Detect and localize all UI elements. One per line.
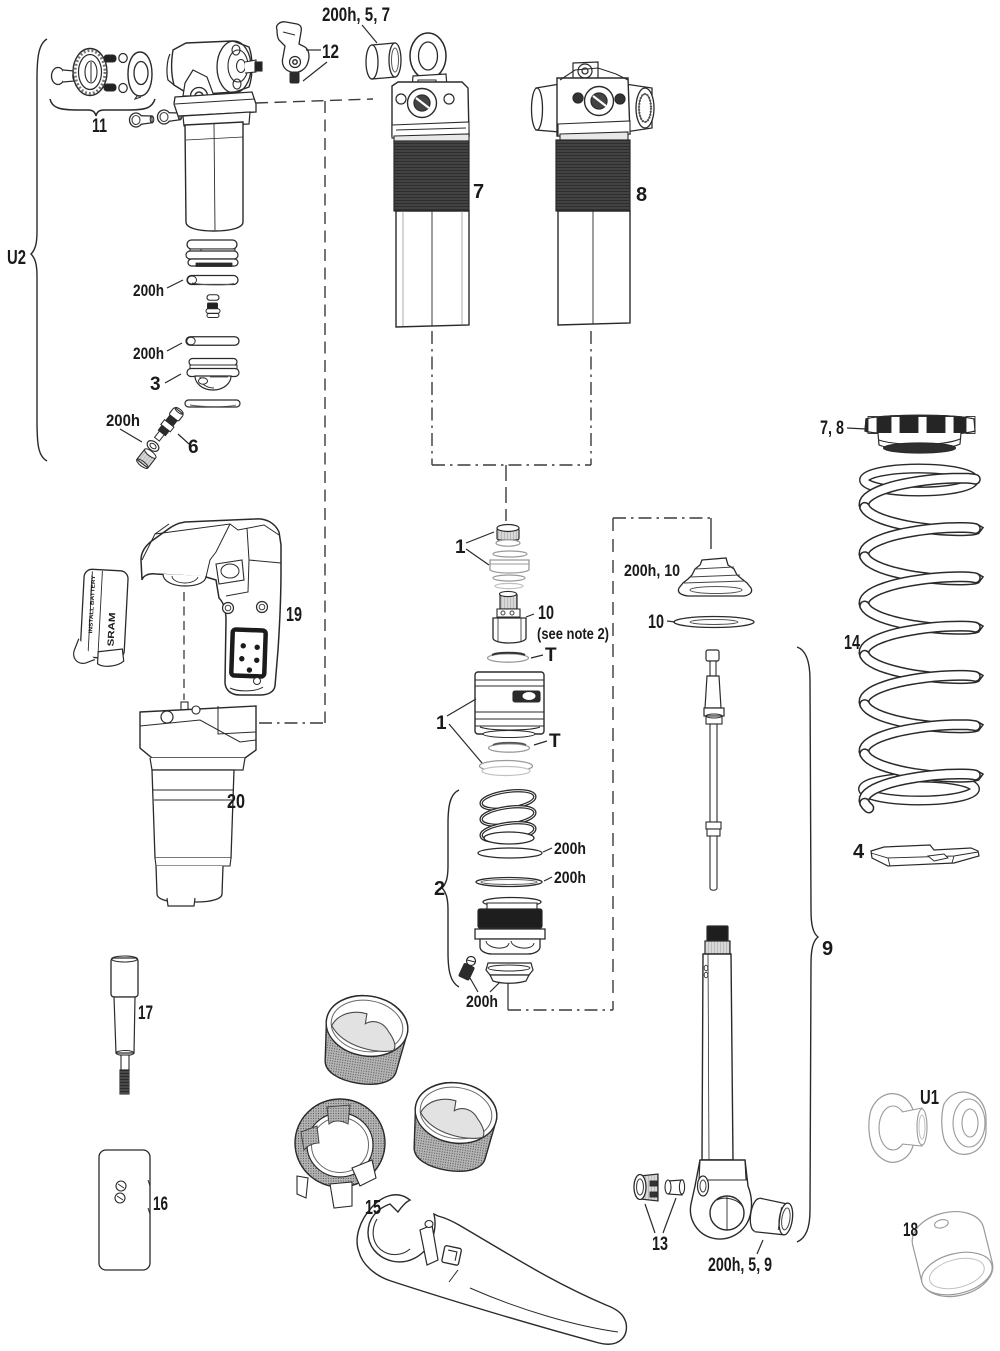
svg-text:18: 18 <box>903 1220 918 1241</box>
svg-text:T: T <box>549 731 561 752</box>
svg-text:16: 16 <box>153 1194 168 1215</box>
svg-text:17: 17 <box>138 1003 153 1024</box>
svg-text:14: 14 <box>844 632 861 654</box>
svg-text:T: T <box>545 645 557 666</box>
svg-text:2: 2 <box>434 878 445 900</box>
svg-text:15: 15 <box>365 1197 381 1219</box>
svg-text:9: 9 <box>822 938 833 960</box>
svg-text:13: 13 <box>652 1234 668 1255</box>
svg-text:200h: 200h <box>554 839 586 858</box>
svg-text:SRAM: SRAM <box>105 612 117 646</box>
svg-text:U2: U2 <box>7 247 26 269</box>
svg-text:200h, 5, 9: 200h, 5, 9 <box>708 1255 772 1276</box>
svg-text:8: 8 <box>636 184 647 206</box>
svg-text:200h, 5, 7: 200h, 5, 7 <box>322 5 390 26</box>
svg-text:12: 12 <box>322 42 339 63</box>
svg-text:200h: 200h <box>466 992 498 1011</box>
svg-text:7, 8: 7, 8 <box>820 418 844 439</box>
svg-text:(see note 2): (see note 2) <box>537 626 609 643</box>
svg-text:200h: 200h <box>133 281 164 300</box>
svg-text:1: 1 <box>436 713 447 734</box>
svg-text:19: 19 <box>286 604 302 626</box>
svg-text:1: 1 <box>455 537 466 558</box>
svg-text:7: 7 <box>473 181 484 203</box>
svg-text:200h: 200h <box>133 344 164 363</box>
svg-text:3: 3 <box>150 374 161 395</box>
svg-text:200h: 200h <box>106 411 140 430</box>
svg-text:U1: U1 <box>920 1087 939 1109</box>
svg-text:20: 20 <box>227 791 245 813</box>
svg-text:200h: 200h <box>554 868 586 887</box>
svg-text:6: 6 <box>188 437 199 458</box>
svg-text:4: 4 <box>853 841 865 863</box>
svg-text:10: 10 <box>648 612 664 633</box>
svg-text:11: 11 <box>92 116 107 137</box>
svg-text:10: 10 <box>538 603 554 624</box>
svg-text:200h, 10: 200h, 10 <box>624 561 680 580</box>
